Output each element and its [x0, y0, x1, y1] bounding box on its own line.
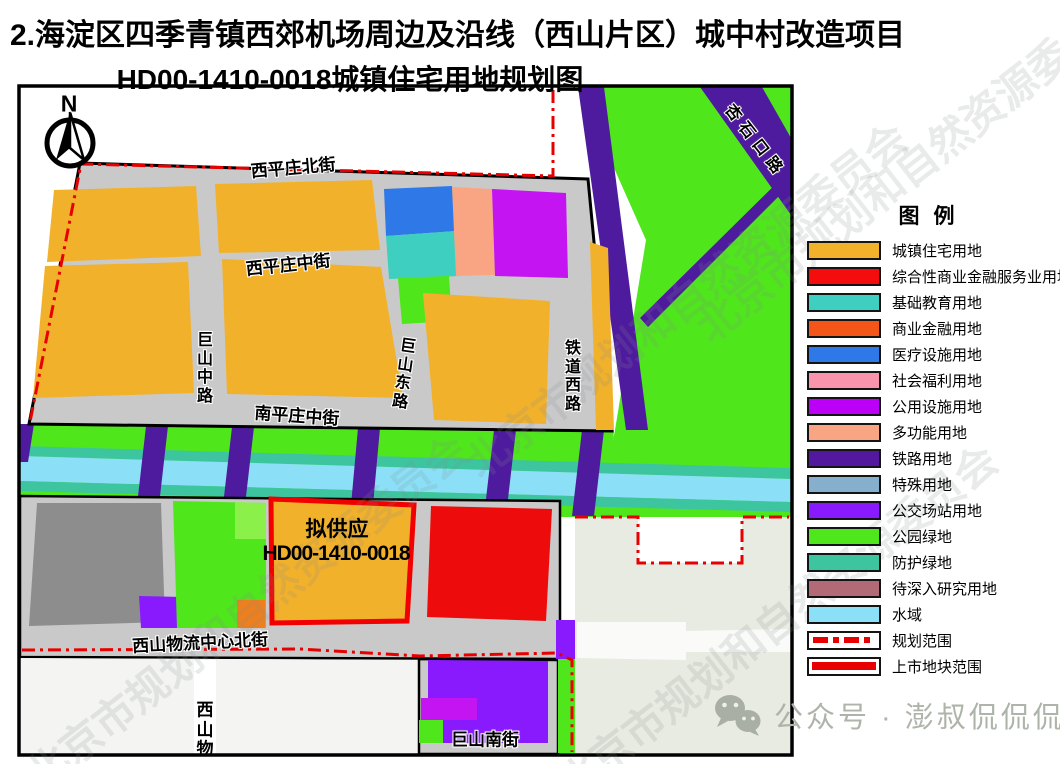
legend-swatch-commercial-finance — [807, 319, 881, 338]
planning-boundary — [22, 90, 789, 752]
street-xishan-partial: 西山物 — [195, 700, 214, 759]
legend-title: 图例 — [807, 200, 1060, 230]
street-xipingzhuang-north: 西平庄北街 — [250, 150, 337, 182]
parcel-utility — [421, 698, 477, 720]
legend-swatch-residential — [807, 241, 881, 260]
legend-row: 铁路用地 — [807, 448, 1060, 468]
legend-swatch-special — [807, 475, 881, 494]
legend-row: 多功能用地 — [807, 422, 1060, 442]
parcel-commercial-finance — [237, 600, 265, 628]
legend-row: 防护绿地 — [807, 552, 1060, 572]
legend-swatch-protective-green — [807, 553, 881, 572]
parcel-education — [386, 231, 460, 279]
parcel-park — [419, 720, 443, 743]
railway-bands — [20, 87, 791, 516]
map-border — [19, 86, 792, 755]
parcel-residential — [590, 242, 614, 430]
legend-swatch-park — [807, 527, 881, 546]
legend-row: 规划范围 — [807, 630, 1060, 650]
watermark: 北京市规划和自然资源委员会 — [11, 418, 479, 764]
street-jushan-east: 巨山东路 — [390, 337, 418, 413]
legend-row: 水域 — [807, 604, 1060, 624]
legend-row: 商业金融用地 — [807, 318, 1060, 338]
legend-swatch-commercial-service — [807, 267, 881, 286]
target-parcel-code: HD00-1410-0018 — [262, 542, 409, 566]
legend-row: 特殊用地 — [807, 474, 1060, 494]
legend-swatch-listed-parcel-boundary — [807, 657, 881, 676]
parcel-park — [173, 501, 266, 628]
parcel-park-light — [235, 502, 266, 539]
legend-row: 基础教育用地 — [807, 292, 1060, 312]
legend-row: 公园绿地 — [807, 526, 1060, 546]
street-nanpingzhuang-middle: 南平庄中街 — [254, 399, 341, 430]
parcel-medical — [384, 186, 456, 236]
legend-row: 公用设施用地 — [807, 396, 1060, 416]
parcel-residential — [423, 293, 550, 424]
legend-row: 待深入研究用地 — [807, 578, 1060, 598]
residential-district — [29, 163, 614, 431]
south-district — [20, 496, 575, 754]
parcel-green-belt — [20, 424, 614, 517]
target-parcel-HD00-1410-0018 — [271, 499, 414, 623]
parcel-green-patch — [398, 276, 452, 324]
legend-swatch-multifunction — [807, 423, 881, 442]
legend-row: 上市地块范围 — [807, 656, 1060, 676]
legend-swatch-water — [807, 605, 881, 624]
parcel-residential — [215, 180, 380, 253]
parcel-transit — [139, 596, 185, 628]
map-background — [19, 86, 792, 755]
legend-swatch-research — [807, 579, 881, 598]
legend-swatch-utility — [807, 397, 881, 416]
legend-swatch-transit — [807, 501, 881, 520]
street-jushan-middle: 巨山中路 — [196, 332, 214, 406]
parcel-transit — [428, 660, 548, 743]
legend-row: 社会福利用地 — [807, 370, 1060, 390]
street-xishan-logistics-north: 西山物流中心北街 — [131, 625, 268, 657]
legend-swatch-railway — [807, 449, 881, 468]
legend-swatch-medical — [807, 345, 881, 364]
wechat-icon — [712, 693, 764, 737]
legend-swatch-planning-boundary — [807, 631, 881, 650]
parcel-park-upper — [578, 87, 791, 517]
legend: 图例 城镇住宅用地 综合性商业金融服务业用地 基础教育用地 商业金融用地 医疗设… — [807, 200, 1060, 682]
street-tiedao-west: 铁道西路 — [564, 340, 582, 414]
planning-map-page: 北京市规划和自然资源委员会 北京市规划和自然资源委员会 北京市规划和自然资源委员… — [0, 0, 1060, 764]
title-line2: HD00-1410-0018城镇住宅用地规划图 — [10, 58, 690, 98]
street-jushan-south: 巨山南街 — [451, 726, 519, 751]
legend-row: 综合性商业金融服务业用地 — [807, 266, 1060, 286]
north-arrow-icon — [47, 112, 93, 166]
street-xipingzhuang-middle: 西平庄中街 — [244, 246, 331, 280]
legend-swatch-welfare — [807, 371, 881, 390]
legend-row: 公交场站用地 — [807, 500, 1060, 520]
title-line1: 2.海淀区四季青镇西郊机场周边及沿线（西山片区）城中村改造项目 — [10, 10, 920, 54]
parcel-residential — [47, 186, 201, 262]
wechat-account-text: 公众号 · 澎叔侃侃侃 — [774, 694, 1060, 736]
legend-swatch-education — [807, 293, 881, 312]
target-parcel-label: 拟供应 — [306, 513, 369, 543]
parcel-commercial-service — [427, 506, 552, 621]
street-xingshikou: 杏石口路 — [720, 98, 793, 182]
legend-row: 医疗设施用地 — [807, 344, 1060, 364]
parcel-residential — [33, 262, 194, 398]
wechat-account-banner: 公众号 · 澎叔侃侃侃 — [712, 693, 1060, 737]
parcel-multifunction — [452, 187, 495, 276]
page-title: 2.海淀区四季青镇西郊机场周边及沿线（西山片区）城中村改造项目 HD00-141… — [10, 10, 920, 98]
parcel-gray — [29, 503, 165, 626]
parcel-residential — [222, 259, 403, 398]
river — [20, 446, 791, 512]
legend-row: 城镇住宅用地 — [807, 240, 1060, 260]
parcel-utility — [492, 189, 568, 278]
